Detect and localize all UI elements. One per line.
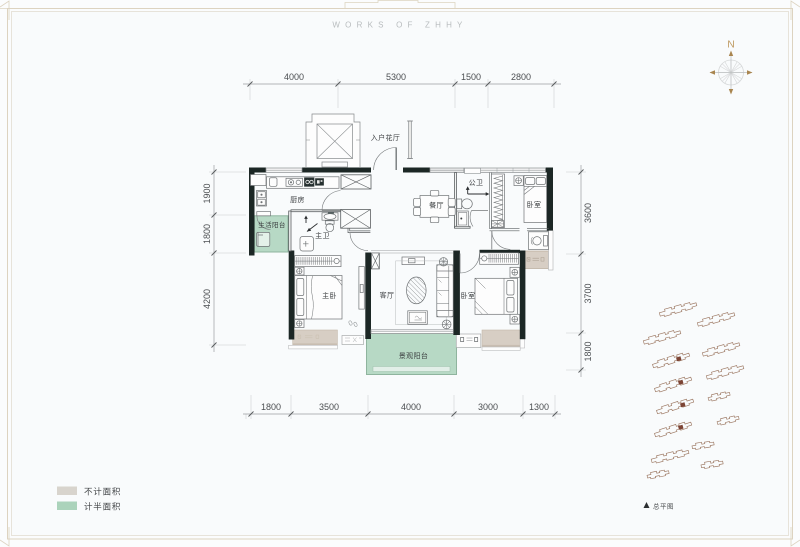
svg-text:主卫: 主卫 (315, 231, 330, 240)
svg-text:景观阳台: 景观阳台 (399, 351, 429, 360)
svg-text:不计面积: 不计面积 (84, 487, 121, 497)
svg-text:4000: 4000 (284, 72, 304, 82)
svg-text:5300: 5300 (386, 72, 406, 82)
svg-text:餐厅: 餐厅 (429, 201, 444, 210)
svg-text:3500: 3500 (319, 402, 339, 412)
svg-text:总平图: 总平图 (653, 502, 674, 511)
svg-text:厨房: 厨房 (290, 195, 305, 204)
svg-text:2800: 2800 (511, 72, 531, 82)
svg-text:1800: 1800 (261, 402, 281, 412)
svg-text:4000: 4000 (401, 402, 421, 412)
svg-text:4200: 4200 (202, 289, 212, 309)
svg-text:入户花厅: 入户花厅 (371, 133, 401, 142)
svg-text:主卧: 主卧 (322, 291, 337, 300)
svg-text:3700: 3700 (583, 283, 593, 303)
svg-text:卧室: 卧室 (527, 200, 542, 209)
svg-text:N: N (727, 39, 735, 51)
svg-text:1300: 1300 (529, 402, 549, 412)
svg-text:1500: 1500 (461, 72, 481, 82)
svg-text:计半面积: 计半面积 (84, 502, 121, 512)
svg-text:3000: 3000 (478, 402, 498, 412)
svg-text:公卫: 公卫 (469, 179, 484, 187)
svg-text:客厅: 客厅 (380, 291, 395, 300)
svg-text:1800: 1800 (583, 341, 593, 361)
svg-text:WORKS OF ZHHY: WORKS OF ZHHY (332, 21, 467, 30)
svg-text:1800: 1800 (202, 224, 212, 244)
svg-text:卧室: 卧室 (461, 291, 476, 300)
svg-text:3600: 3600 (583, 203, 593, 223)
svg-text:1900: 1900 (202, 183, 212, 203)
svg-text:生活阳台: 生活阳台 (258, 220, 286, 229)
